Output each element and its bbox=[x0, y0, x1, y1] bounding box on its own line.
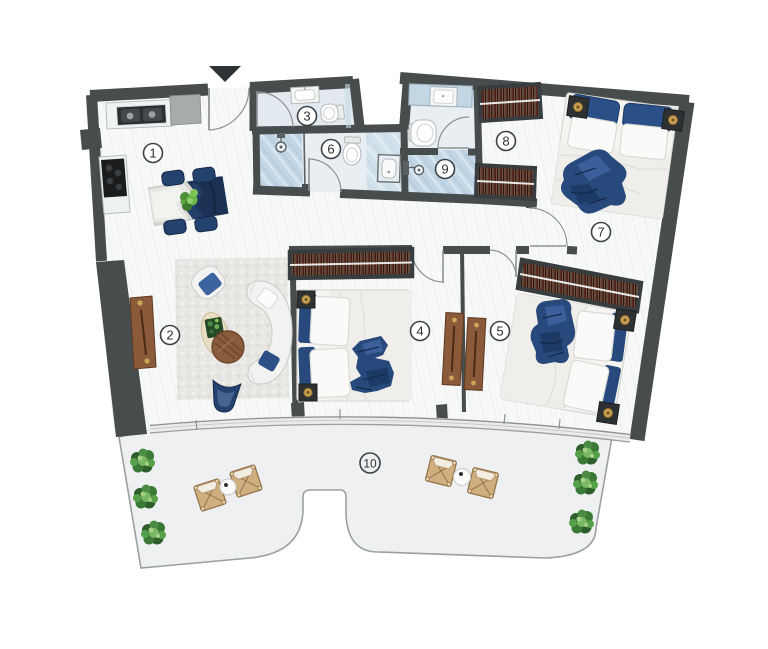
svg-text:5: 5 bbox=[496, 323, 503, 338]
svg-text:8: 8 bbox=[502, 133, 509, 148]
svg-text:2: 2 bbox=[166, 327, 173, 342]
svg-text:6: 6 bbox=[327, 141, 334, 156]
svg-text:9: 9 bbox=[441, 161, 448, 176]
svg-text:3: 3 bbox=[303, 108, 310, 123]
svg-text:4: 4 bbox=[416, 323, 423, 338]
svg-text:7: 7 bbox=[597, 224, 604, 239]
svg-text:1: 1 bbox=[149, 145, 156, 160]
svg-text:10: 10 bbox=[363, 456, 377, 470]
